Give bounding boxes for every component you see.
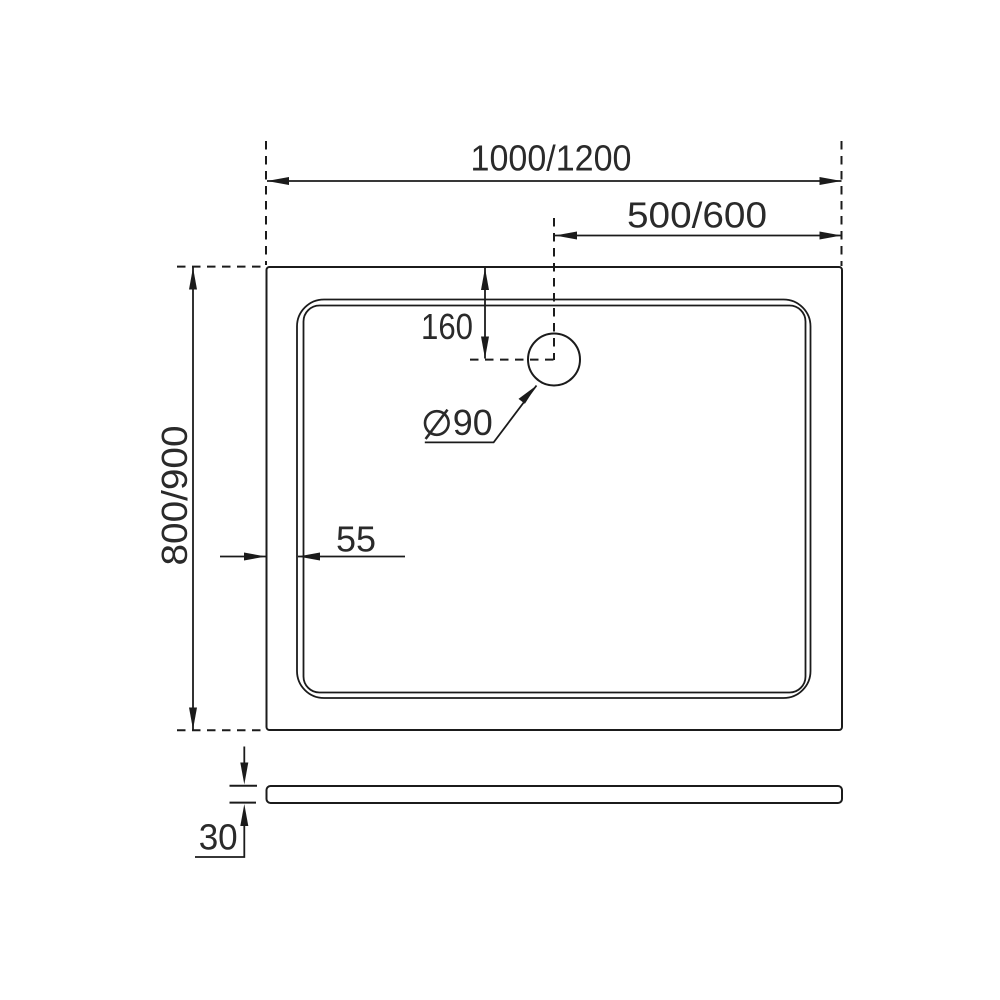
svg-text:800/900: 800/900 [154,426,195,566]
svg-text:30: 30 [199,817,238,858]
svg-text:160: 160 [421,306,473,347]
svg-text:500/600: 500/600 [627,195,767,236]
svg-text:90: 90 [453,402,493,443]
svg-text:1000/1200: 1000/1200 [471,138,632,179]
svg-text:55: 55 [336,519,376,560]
